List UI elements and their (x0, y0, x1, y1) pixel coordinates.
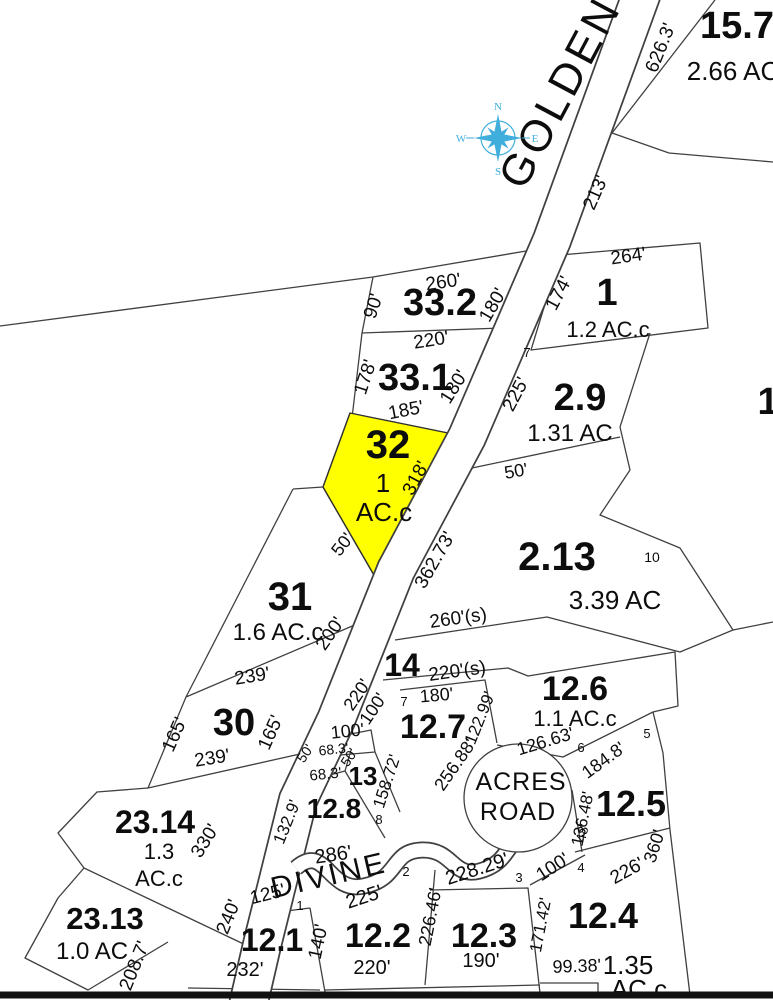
lot-number-7: 7 (523, 345, 530, 360)
dimension-178: 178' (350, 357, 381, 397)
lot-number-5: 5 (643, 726, 650, 741)
dimension-239: 239' (193, 745, 231, 771)
area-1.6AC.c: 1.6 AC.c (233, 619, 324, 646)
dimension-68.3: 68.3' (309, 764, 343, 784)
parcel-number-2.13: 2.13 (518, 535, 596, 579)
lot-number-4: 4 (577, 860, 584, 875)
road-label-ACRES: ACRES (475, 768, 566, 796)
lot-number-6: 6 (577, 740, 584, 755)
dimension-185: 185' (387, 397, 426, 424)
parcel-number-32: 32 (366, 423, 411, 467)
parcel-number-33.2: 33.2 (403, 282, 477, 324)
area-AC.c: AC.c (135, 866, 183, 891)
area-1.3: 1.3 (144, 839, 175, 864)
parcel-number-15.7: 15.7 (700, 5, 773, 47)
dimension-50: 50' (503, 459, 530, 483)
lot-number-7: 7 (400, 694, 407, 709)
dimension-140: 140' (305, 922, 333, 961)
parcel-number-14: 14 (384, 647, 420, 683)
parcel-number-12.4: 12.4 (568, 895, 638, 936)
area-1: 1 (376, 468, 390, 498)
dimension-220s: 220'(s) (427, 657, 487, 686)
dimension-360: 360' (640, 827, 669, 865)
dimension-232: 232' (226, 959, 263, 981)
parcel-number-12.2: 12.2 (345, 917, 411, 955)
parcel-number-12.1: 12.1 (241, 922, 303, 958)
dimension-226.46: 226.46' (415, 886, 446, 947)
parcel-number-13: 13 (349, 761, 378, 791)
dimension-165: 165' (158, 714, 192, 755)
parcel-number-33.1: 33.1 (378, 357, 452, 399)
parcel-number-12.5: 12.5 (596, 783, 666, 824)
area-1.31AC: 1.31 AC (527, 420, 612, 447)
parcel-number-1: 1 (596, 272, 617, 314)
area-3.39AC: 3.39 AC (569, 585, 662, 615)
parcel-number-30: 30 (213, 702, 255, 744)
dimension-220: 220' (412, 327, 450, 353)
dimension-220: 220' (353, 957, 390, 979)
area-AC.c: AC.c (356, 497, 412, 527)
dimension-180: 180' (419, 684, 454, 707)
parcel-number-23.14: 23.14 (115, 804, 195, 840)
compass-north-label: N (494, 101, 502, 113)
lot-number-3: 3 (515, 870, 522, 885)
dimension-264: 264' (609, 244, 647, 270)
parcel-number-1: 1 (757, 381, 773, 423)
area-1.1AC.c: 1.1 AC.c (533, 706, 616, 731)
parcel-number-12.8: 12.8 (307, 793, 362, 824)
lot-number-10: 10 (644, 549, 660, 565)
parcel-number-12.6: 12.6 (542, 670, 608, 708)
dimension-239: 239' (233, 663, 271, 689)
dimension-165: 165' (254, 712, 288, 753)
plat-map-page: 626.3'213'260'90'180'264'174'220'178'180… (0, 0, 773, 1000)
parcel-number-12.3: 12.3 (451, 917, 517, 955)
dimension-99.38: 99.38' (552, 955, 601, 977)
lot-number-1: 1 (296, 898, 303, 913)
dimension-260s: 260'(s) (428, 604, 488, 633)
compass-east-label: E (532, 133, 539, 145)
area-2.66AC: 2.66 AC (687, 56, 773, 86)
parcel-number-2.9: 2.9 (554, 377, 607, 419)
parcel-number-31: 31 (268, 575, 313, 619)
parcel-number-12.7: 12.7 (400, 708, 466, 746)
area-1.0AC: 1.0 AC (56, 938, 128, 965)
dimension-48: 48' (572, 822, 592, 844)
compass-south-label: S (495, 166, 501, 178)
dimension-184.8: 184.8' (578, 738, 629, 783)
area-1.2AC.c: 1.2 AC.c (566, 317, 649, 342)
road-label-ROAD: ROAD (480, 798, 556, 826)
dimension-90: 90' (360, 291, 388, 321)
parcel-map-canvas: 626.3'213'260'90'180'264'174'220'178'180… (0, 0, 773, 1000)
parcel-number-23.13: 23.13 (66, 901, 144, 936)
lot-number-8: 8 (375, 812, 382, 827)
lot-number-2: 2 (402, 864, 409, 879)
compass-west-label: W (456, 133, 467, 145)
